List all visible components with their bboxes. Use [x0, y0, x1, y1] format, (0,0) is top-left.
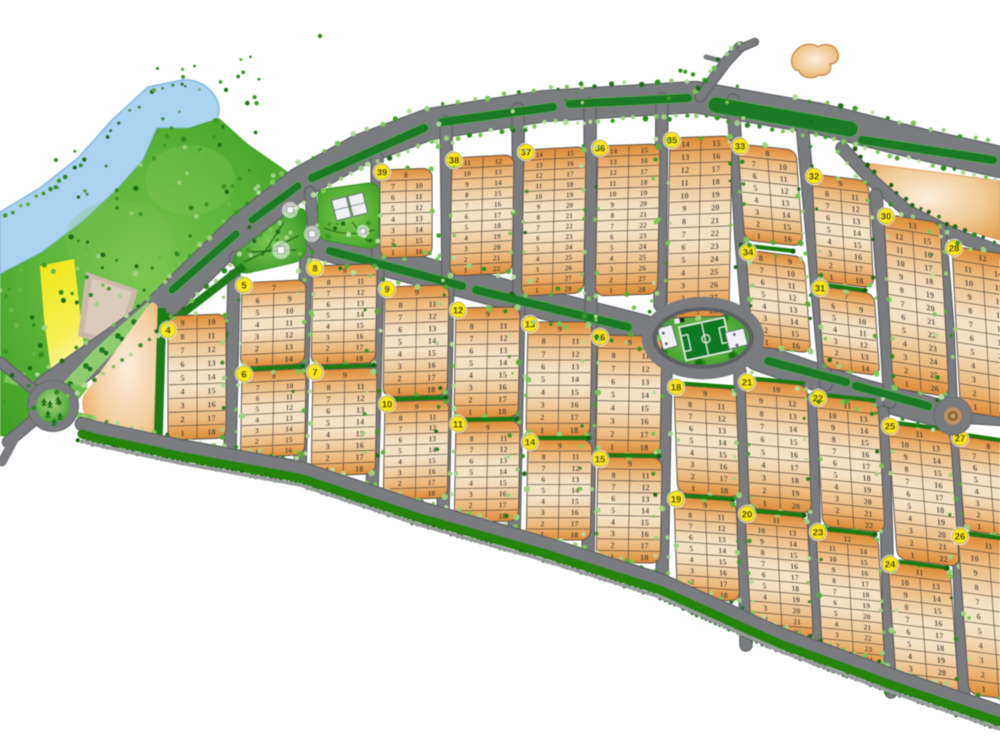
svg-text:17: 17: [861, 461, 870, 472]
svg-text:12: 12: [207, 345, 215, 354]
svg-text:11: 11: [915, 429, 924, 440]
svg-text:8: 8: [541, 337, 545, 346]
svg-text:2: 2: [464, 255, 468, 264]
svg-text:6: 6: [256, 394, 260, 403]
svg-text:7: 7: [905, 614, 910, 624]
svg-text:13: 13: [908, 220, 917, 231]
svg-text:14: 14: [789, 539, 797, 549]
svg-text:20: 20: [792, 606, 800, 616]
svg-text:20: 20: [493, 242, 501, 251]
svg-text:1: 1: [609, 286, 613, 295]
svg-text:12: 12: [415, 203, 423, 212]
svg-text:6: 6: [973, 462, 978, 473]
svg-text:12: 12: [571, 464, 579, 473]
svg-text:11: 11: [717, 513, 725, 523]
svg-text:18: 18: [855, 275, 864, 286]
svg-text:13: 13: [788, 528, 796, 538]
svg-text:19: 19: [711, 190, 720, 199]
svg-text:22: 22: [939, 553, 948, 564]
svg-text:12: 12: [357, 288, 365, 297]
svg-text:15: 15: [789, 438, 798, 448]
svg-text:13: 13: [285, 413, 293, 422]
svg-text:20: 20: [742, 509, 753, 520]
svg-text:14: 14: [790, 316, 800, 327]
svg-text:18: 18: [355, 464, 364, 473]
svg-text:5: 5: [970, 346, 975, 357]
svg-text:18: 18: [570, 531, 578, 540]
svg-text:11: 11: [609, 179, 616, 188]
svg-text:25: 25: [885, 421, 896, 432]
svg-text:15: 15: [641, 518, 650, 527]
svg-text:17: 17: [356, 343, 364, 352]
svg-text:13: 13: [285, 342, 294, 351]
svg-text:18: 18: [711, 177, 720, 186]
svg-text:8: 8: [825, 188, 830, 198]
svg-text:15: 15: [356, 321, 364, 330]
svg-text:6: 6: [398, 435, 402, 444]
svg-text:3: 3: [610, 417, 614, 426]
svg-text:13: 13: [641, 378, 650, 387]
svg-text:5: 5: [902, 325, 907, 336]
svg-text:13: 13: [415, 214, 423, 223]
svg-text:20: 20: [937, 529, 946, 540]
svg-text:6: 6: [969, 333, 974, 344]
svg-text:11: 11: [500, 322, 508, 331]
svg-text:33: 33: [735, 141, 746, 152]
svg-text:2: 2: [756, 219, 761, 229]
svg-text:14: 14: [494, 178, 502, 187]
svg-text:12: 12: [717, 414, 726, 424]
svg-text:6: 6: [469, 457, 473, 466]
svg-text:7: 7: [391, 182, 395, 191]
svg-text:9: 9: [903, 452, 908, 462]
svg-text:21: 21: [793, 617, 801, 627]
svg-text:8: 8: [831, 434, 836, 444]
svg-text:2: 2: [468, 396, 472, 405]
svg-text:16: 16: [207, 400, 215, 409]
svg-text:2: 2: [255, 344, 259, 353]
svg-text:15: 15: [499, 370, 508, 379]
svg-text:39: 39: [377, 167, 388, 178]
svg-text:9: 9: [415, 402, 419, 411]
svg-text:7: 7: [832, 446, 837, 456]
svg-text:3: 3: [762, 473, 767, 482]
svg-text:8: 8: [682, 217, 686, 226]
svg-text:7: 7: [751, 159, 756, 169]
svg-text:13: 13: [718, 426, 727, 436]
svg-text:8: 8: [986, 441, 991, 452]
svg-text:8: 8: [688, 511, 692, 520]
svg-text:18: 18: [671, 382, 682, 393]
svg-text:10: 10: [285, 306, 294, 315]
svg-text:24: 24: [565, 243, 573, 251]
svg-text:26: 26: [639, 263, 647, 272]
svg-text:5: 5: [464, 223, 468, 232]
svg-text:5: 5: [753, 183, 758, 193]
svg-text:2: 2: [398, 479, 402, 488]
svg-text:5: 5: [689, 436, 694, 445]
svg-text:14: 14: [571, 486, 579, 495]
svg-text:5: 5: [761, 448, 766, 457]
svg-text:5: 5: [391, 204, 395, 213]
svg-text:14: 14: [356, 417, 365, 426]
svg-text:24: 24: [639, 242, 647, 251]
svg-text:14: 14: [718, 438, 728, 448]
svg-text:13: 13: [571, 363, 580, 372]
svg-text:13: 13: [494, 167, 502, 176]
svg-text:10: 10: [415, 181, 423, 190]
svg-text:6: 6: [833, 598, 837, 607]
svg-text:14: 14: [356, 310, 364, 319]
svg-text:10: 10: [286, 381, 294, 390]
svg-text:9: 9: [537, 203, 541, 211]
svg-text:9: 9: [759, 397, 764, 406]
svg-text:6: 6: [906, 488, 911, 498]
svg-text:15: 15: [207, 386, 215, 395]
svg-text:14: 14: [536, 151, 544, 159]
svg-text:3: 3: [609, 264, 613, 273]
svg-text:2: 2: [976, 509, 981, 520]
svg-text:8: 8: [536, 214, 540, 222]
svg-text:3: 3: [398, 468, 402, 477]
svg-text:14: 14: [789, 425, 798, 435]
svg-text:17: 17: [640, 430, 649, 439]
svg-text:3: 3: [833, 336, 838, 347]
svg-text:6: 6: [541, 363, 545, 372]
svg-text:13: 13: [571, 475, 579, 484]
svg-text:16: 16: [934, 480, 943, 491]
svg-text:11: 11: [286, 392, 293, 401]
svg-text:12: 12: [843, 534, 851, 544]
svg-text:14: 14: [525, 437, 536, 448]
svg-text:6: 6: [906, 626, 911, 636]
svg-text:9: 9: [628, 338, 632, 347]
svg-text:22: 22: [565, 222, 573, 230]
svg-text:19: 19: [566, 191, 574, 199]
svg-text:11: 11: [429, 412, 437, 421]
svg-text:16: 16: [356, 332, 364, 341]
svg-text:3: 3: [681, 281, 685, 290]
svg-text:22: 22: [711, 229, 720, 238]
svg-text:1: 1: [254, 356, 258, 365]
svg-text:16: 16: [854, 251, 863, 262]
svg-text:16: 16: [934, 618, 943, 629]
svg-text:9: 9: [967, 291, 972, 302]
svg-text:12: 12: [641, 365, 650, 374]
svg-text:18: 18: [640, 178, 648, 187]
svg-text:16: 16: [428, 467, 436, 476]
svg-text:6: 6: [689, 424, 694, 433]
svg-text:3: 3: [835, 630, 839, 639]
svg-text:14: 14: [428, 336, 437, 345]
svg-text:21: 21: [863, 623, 871, 633]
svg-text:5: 5: [255, 405, 259, 414]
svg-text:6: 6: [689, 533, 693, 542]
svg-text:13: 13: [859, 413, 868, 424]
svg-text:6: 6: [611, 494, 615, 503]
svg-text:8: 8: [760, 548, 764, 557]
svg-text:12: 12: [571, 350, 580, 359]
svg-text:34: 34: [743, 247, 754, 258]
svg-text:23: 23: [565, 233, 573, 241]
svg-text:18: 18: [791, 476, 800, 486]
svg-text:11: 11: [429, 300, 437, 309]
svg-text:12: 12: [495, 157, 503, 166]
svg-text:7: 7: [399, 424, 403, 433]
svg-text:6: 6: [760, 277, 765, 287]
svg-text:15: 15: [499, 478, 507, 487]
svg-text:11: 11: [915, 567, 924, 578]
svg-text:15: 15: [570, 388, 579, 397]
svg-text:11: 11: [642, 471, 650, 480]
svg-text:9: 9: [465, 180, 469, 189]
svg-text:11: 11: [851, 192, 859, 203]
svg-text:18: 18: [570, 426, 579, 435]
svg-text:1: 1: [977, 521, 982, 532]
svg-text:1: 1: [180, 429, 184, 438]
svg-text:7: 7: [326, 289, 330, 298]
svg-text:12: 12: [285, 330, 294, 339]
svg-text:3: 3: [397, 362, 401, 371]
svg-text:16: 16: [790, 450, 799, 460]
svg-text:3: 3: [464, 244, 468, 253]
svg-text:12: 12: [717, 524, 725, 534]
svg-text:5: 5: [762, 581, 766, 590]
svg-text:3: 3: [180, 401, 184, 410]
svg-text:14: 14: [994, 268, 1000, 279]
svg-text:18: 18: [997, 323, 1000, 334]
svg-text:28: 28: [564, 285, 572, 293]
svg-text:7: 7: [312, 367, 317, 378]
svg-text:5: 5: [469, 359, 473, 368]
svg-text:1: 1: [763, 499, 768, 508]
svg-text:16: 16: [860, 568, 868, 578]
svg-text:13: 13: [931, 443, 940, 454]
svg-text:8: 8: [904, 464, 909, 474]
svg-text:3: 3: [690, 460, 695, 469]
svg-text:1: 1: [981, 684, 986, 695]
svg-text:2: 2: [325, 454, 329, 463]
svg-text:1: 1: [973, 401, 978, 412]
svg-text:8: 8: [758, 253, 763, 263]
svg-text:2: 2: [909, 537, 914, 547]
svg-text:6: 6: [391, 193, 395, 202]
svg-text:15: 15: [595, 454, 606, 465]
svg-text:2: 2: [609, 275, 613, 284]
svg-text:13: 13: [641, 495, 650, 504]
svg-text:15: 15: [994, 282, 1000, 293]
svg-text:6: 6: [976, 611, 981, 622]
svg-text:16: 16: [285, 446, 293, 455]
svg-text:18: 18: [207, 428, 215, 437]
svg-text:5: 5: [610, 243, 614, 252]
svg-text:16: 16: [499, 489, 507, 498]
svg-text:6: 6: [826, 212, 831, 222]
svg-text:14: 14: [641, 506, 650, 515]
svg-text:17: 17: [640, 167, 648, 176]
svg-text:15: 15: [719, 557, 727, 567]
svg-text:5: 5: [398, 338, 402, 347]
svg-text:7: 7: [610, 222, 614, 231]
svg-text:9: 9: [903, 590, 908, 600]
svg-text:1: 1: [397, 386, 401, 395]
svg-text:15: 15: [923, 235, 932, 246]
svg-text:2: 2: [326, 344, 330, 353]
svg-text:6: 6: [326, 300, 330, 309]
svg-text:13: 13: [860, 351, 869, 362]
svg-text:21: 21: [639, 210, 647, 219]
svg-text:10: 10: [786, 268, 795, 279]
svg-text:21: 21: [566, 212, 574, 220]
svg-text:17: 17: [428, 478, 436, 487]
svg-text:18: 18: [640, 443, 649, 452]
svg-text:6: 6: [536, 234, 540, 242]
svg-text:14: 14: [782, 209, 792, 220]
svg-text:4: 4: [469, 479, 473, 488]
svg-text:14: 14: [932, 455, 942, 466]
svg-text:17: 17: [570, 413, 579, 422]
svg-text:16: 16: [355, 441, 364, 450]
svg-text:30: 30: [881, 211, 892, 222]
svg-text:15: 15: [641, 145, 649, 154]
svg-text:12: 12: [453, 305, 464, 316]
svg-text:5: 5: [326, 419, 330, 428]
svg-text:10: 10: [772, 385, 781, 395]
svg-text:5: 5: [833, 469, 838, 479]
svg-text:16: 16: [567, 160, 575, 168]
svg-text:19: 19: [640, 188, 648, 197]
svg-text:4: 4: [834, 619, 838, 628]
svg-text:2: 2: [980, 669, 985, 680]
svg-text:19: 19: [936, 516, 945, 527]
svg-text:15: 15: [782, 221, 791, 232]
svg-text:3: 3: [325, 442, 329, 451]
svg-text:3: 3: [255, 426, 259, 435]
svg-text:8: 8: [465, 190, 469, 199]
svg-text:2: 2: [540, 519, 544, 528]
svg-text:14: 14: [861, 363, 871, 374]
svg-text:2: 2: [904, 365, 909, 376]
svg-text:28: 28: [638, 285, 646, 294]
svg-text:7: 7: [272, 283, 276, 292]
svg-text:15: 15: [790, 328, 799, 339]
svg-text:18: 18: [427, 385, 436, 394]
svg-text:15: 15: [571, 497, 579, 506]
svg-text:4: 4: [464, 233, 468, 242]
svg-text:1: 1: [829, 272, 834, 282]
svg-text:9: 9: [760, 537, 764, 546]
svg-text:38: 38: [449, 155, 460, 166]
svg-text:8: 8: [832, 576, 836, 585]
svg-text:18: 18: [936, 504, 945, 515]
svg-text:8: 8: [327, 278, 331, 287]
svg-text:6: 6: [611, 377, 615, 386]
svg-text:1: 1: [836, 517, 841, 527]
svg-text:16: 16: [494, 199, 502, 208]
svg-text:18: 18: [427, 489, 435, 498]
svg-text:16: 16: [861, 449, 870, 460]
svg-text:7: 7: [541, 464, 545, 473]
svg-text:11: 11: [896, 244, 904, 255]
svg-text:9: 9: [973, 567, 978, 578]
svg-text:24: 24: [929, 356, 939, 367]
svg-text:17: 17: [427, 373, 436, 382]
svg-text:25: 25: [565, 254, 573, 262]
svg-text:1: 1: [691, 484, 696, 493]
svg-text:5: 5: [611, 506, 615, 515]
svg-text:17: 17: [854, 263, 863, 274]
svg-text:19: 19: [791, 489, 800, 499]
svg-text:7: 7: [825, 200, 830, 210]
svg-text:11: 11: [572, 453, 580, 462]
svg-text:11: 11: [772, 516, 780, 526]
svg-text:17: 17: [498, 395, 507, 404]
svg-text:7: 7: [469, 445, 473, 454]
svg-text:26: 26: [930, 383, 939, 394]
svg-text:1: 1: [610, 443, 614, 452]
svg-text:5: 5: [611, 390, 615, 399]
svg-text:7: 7: [180, 346, 184, 355]
svg-text:2: 2: [610, 430, 614, 439]
svg-text:20: 20: [566, 201, 574, 209]
svg-text:18: 18: [791, 584, 799, 594]
svg-text:18: 18: [640, 553, 649, 562]
svg-text:13: 13: [852, 215, 861, 226]
svg-text:1: 1: [910, 550, 915, 560]
svg-text:12: 12: [356, 394, 365, 403]
svg-text:15: 15: [933, 605, 942, 616]
svg-text:16: 16: [570, 401, 579, 410]
svg-text:31: 31: [815, 283, 826, 294]
svg-text:7: 7: [256, 383, 260, 392]
svg-text:11: 11: [453, 419, 464, 430]
svg-text:2: 2: [468, 501, 472, 510]
svg-text:4: 4: [255, 415, 259, 424]
svg-text:2: 2: [540, 413, 544, 422]
svg-text:12: 12: [681, 166, 690, 175]
svg-text:19: 19: [862, 601, 870, 611]
svg-text:13: 13: [931, 581, 940, 592]
svg-text:10: 10: [828, 410, 837, 421]
svg-text:9: 9: [899, 271, 904, 282]
svg-text:14: 14: [681, 140, 690, 149]
svg-text:7: 7: [760, 422, 765, 431]
svg-text:6: 6: [180, 360, 184, 369]
svg-text:37: 37: [521, 147, 532, 158]
svg-text:13: 13: [681, 153, 690, 162]
svg-text:22: 22: [864, 633, 872, 643]
svg-text:2: 2: [255, 437, 259, 446]
svg-text:14: 14: [859, 547, 867, 557]
svg-text:17: 17: [571, 519, 579, 528]
svg-text:9: 9: [831, 565, 835, 574]
svg-text:5: 5: [326, 311, 330, 320]
svg-text:6: 6: [541, 475, 545, 484]
svg-text:17: 17: [924, 262, 934, 273]
svg-text:1: 1: [468, 408, 472, 417]
svg-text:16: 16: [427, 361, 436, 370]
svg-text:12: 12: [859, 339, 868, 350]
svg-text:14: 14: [285, 424, 293, 433]
svg-text:9: 9: [628, 460, 632, 469]
svg-text:14: 14: [415, 225, 423, 234]
svg-text:6: 6: [398, 325, 402, 334]
svg-text:12: 12: [780, 185, 789, 196]
svg-text:5: 5: [541, 486, 545, 495]
svg-text:6: 6: [762, 570, 766, 579]
svg-text:8: 8: [312, 263, 317, 274]
svg-text:11: 11: [859, 328, 868, 339]
